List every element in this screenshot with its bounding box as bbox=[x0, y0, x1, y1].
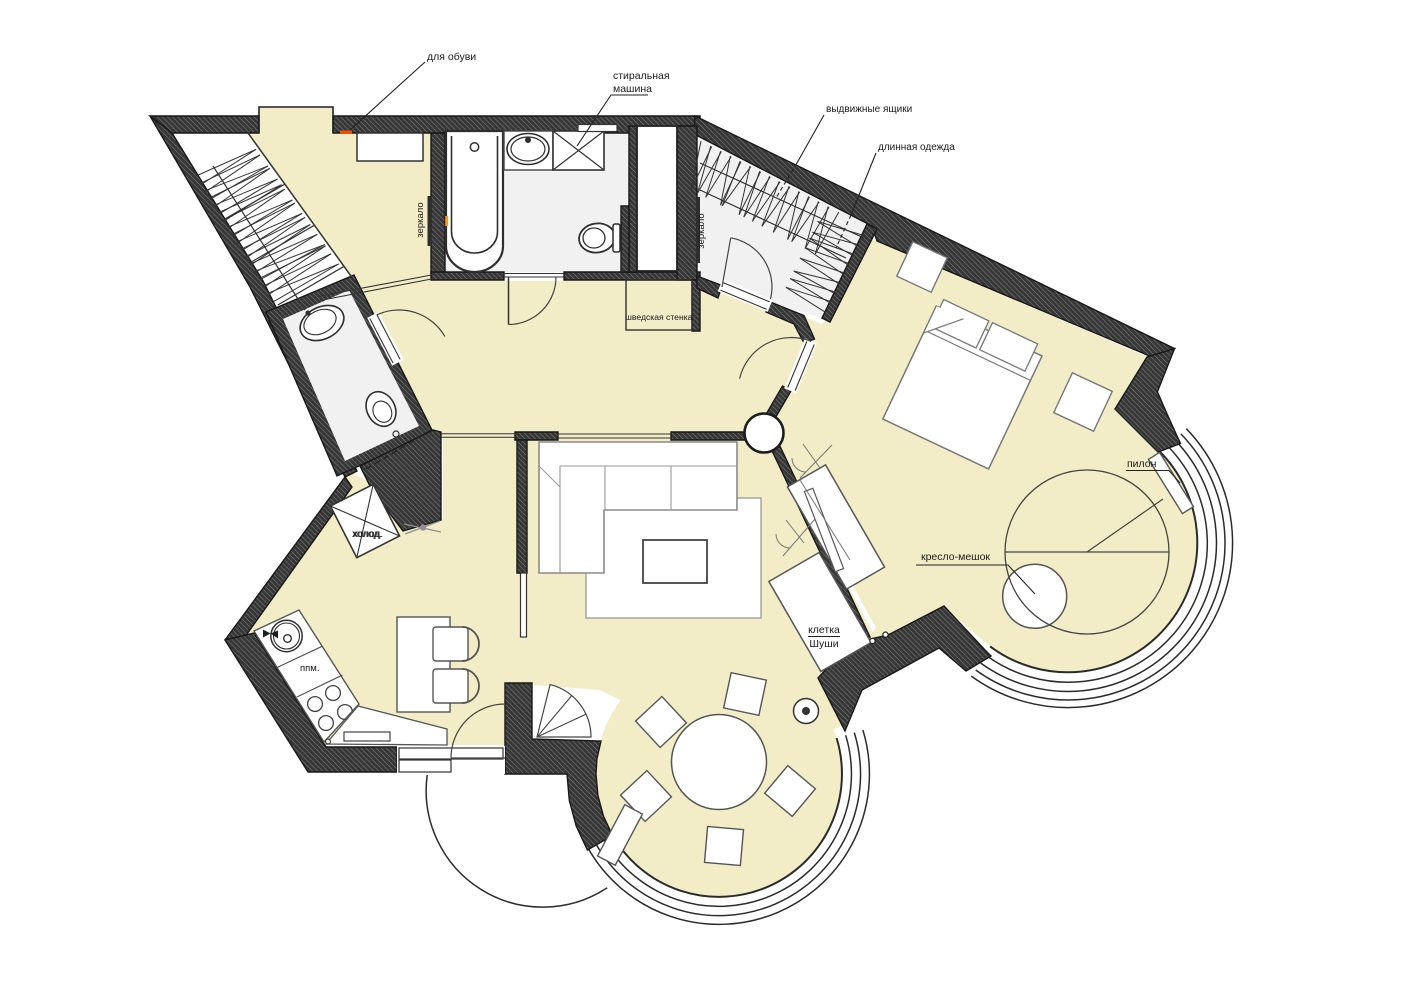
svg-text:ппм.: ппм. bbox=[300, 663, 319, 674]
svg-text:холод.: холод. bbox=[353, 529, 383, 540]
svg-text:пилон: пилон bbox=[1127, 458, 1157, 470]
svg-text:кресло-мешок: кресло-мешок bbox=[921, 551, 990, 563]
svg-text:длинная одежда: длинная одежда bbox=[878, 142, 955, 153]
svg-text:стиральная: стиральная bbox=[613, 70, 670, 82]
svg-text:зеркало: зеркало bbox=[696, 213, 707, 248]
svg-text:для обуви: для обуви bbox=[427, 51, 476, 63]
svg-text:шведская стенка: шведская стенка bbox=[625, 312, 693, 322]
svg-text:зеркало: зеркало bbox=[415, 202, 426, 237]
svg-text:Шуши: Шуши bbox=[809, 638, 838, 650]
svg-text:клетка: клетка bbox=[808, 624, 840, 636]
svg-text:выдвижные ящики: выдвижные ящики bbox=[826, 104, 912, 115]
svg-text:машина: машина bbox=[613, 83, 652, 95]
